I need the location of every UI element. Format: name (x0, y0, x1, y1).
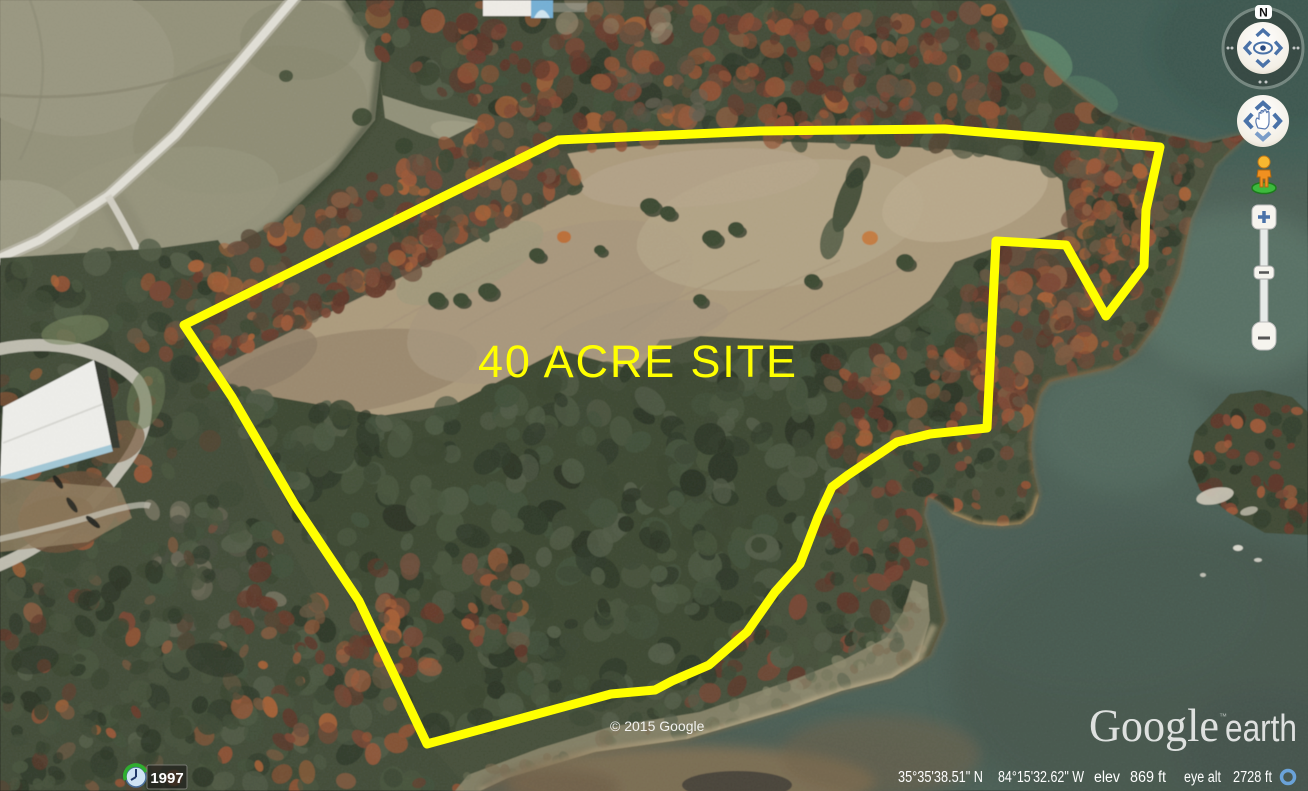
svg-text:869 ft: 869 ft (1130, 769, 1167, 786)
svg-text:N: N (1259, 6, 1268, 20)
svg-text:35°35'38.51" N: 35°35'38.51" N (898, 769, 983, 786)
svg-text:40 ACRE SITE: 40 ACRE SITE (478, 336, 796, 387)
svg-text:84°15'32.62" W: 84°15'32.62" W (998, 769, 1084, 786)
svg-text:1997: 1997 (150, 770, 183, 787)
svg-text:© 2015 Google: © 2015 Google (610, 718, 705, 734)
svg-text:elev: elev (1094, 769, 1120, 786)
svg-text:2728 ft: 2728 ft (1233, 769, 1273, 786)
svg-text:Google: Google (1089, 700, 1219, 752)
svg-text:eye alt: eye alt (1184, 769, 1222, 786)
svg-text:earth: earth (1225, 708, 1297, 750)
